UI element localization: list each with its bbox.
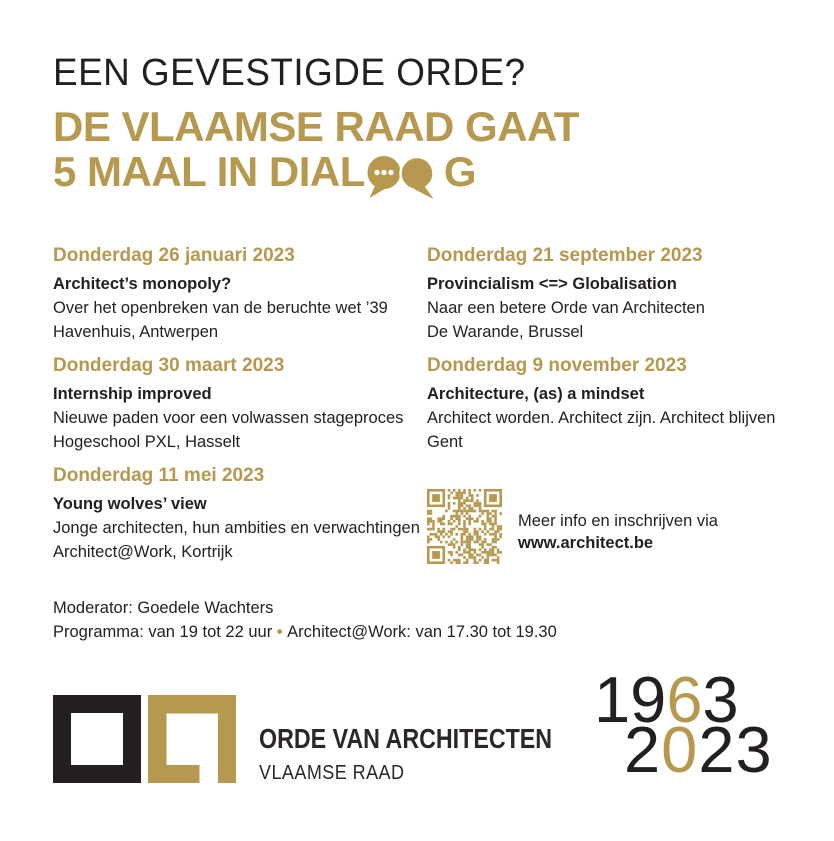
event-date: Donderdag 26 januari 2023 (53, 243, 427, 268)
brand-subtitle: VLAAMSE RAAD (259, 763, 577, 783)
headline: DE VLAAMSE RAAD GAAT 5 MAAL IN DIAL G (53, 104, 579, 202)
programma-line: Programma: van 19 tot 22 uur • Architect… (53, 620, 557, 644)
event-date: Donderdag 21 september 2023 (427, 243, 803, 268)
website-link[interactable]: www.architect.be (518, 532, 718, 554)
footer-notes: Moderator: Goedele Wachters Programma: v… (53, 596, 557, 644)
brand-row: ORDE VAN ARCHITECTEN VLAAMSE RAAD (53, 695, 612, 783)
speech-bubble-icon (400, 157, 433, 190)
programma-part1: Programma: van 19 tot 22 uur (53, 623, 272, 641)
event-title: Architecture, (as) a mindset (427, 382, 803, 406)
qr-code (427, 489, 502, 564)
bullet-separator: • (277, 623, 287, 641)
gold-square-logo-icon (148, 695, 236, 783)
event-location: Hogeschool PXL, Hasselt (53, 430, 427, 454)
event-may: Donderdag 11 mei 2023 Young wolves’ view… (53, 463, 427, 573)
event-date: Donderdag 11 mei 2023 (53, 463, 427, 488)
event-location: De Warande, Brussel (427, 320, 803, 344)
gold-zero: 0 (661, 713, 698, 786)
event-location: Havenhuis, Antwerpen (53, 320, 427, 344)
programma-part2: Architect@Work: van 17.30 tot 19.30 (287, 623, 557, 641)
black-square-logo-icon (53, 695, 141, 783)
qr-info-block: Meer info en inschrijven via www.archite… (427, 463, 803, 573)
event-november: Donderdag 9 november 2023 Architecture, … (427, 353, 803, 463)
event-september: Donderdag 21 september 2023 Provincialis… (427, 243, 803, 353)
qr-caption: Meer info en inschrijven via www.archite… (518, 498, 718, 554)
event-title: Internship improved (53, 382, 427, 406)
event-title: Young wolves’ view (53, 492, 427, 516)
event-march: Donderdag 30 maart 2023 Internship impro… (53, 353, 427, 463)
poster: EEN GEVESTIGDE ORDE? DE VLAAMSE RAAD GAA… (0, 0, 834, 841)
event-description: Naar een betere Orde van Architecten (427, 296, 803, 320)
headline-line1: DE VLAAMSE RAAD GAAT (53, 104, 579, 149)
event-date: Donderdag 30 maart 2023 (53, 353, 427, 378)
headline-line2-text-end: G (444, 149, 476, 194)
event-location: Architect@Work, Kortrijk (53, 540, 427, 564)
events-grid: Donderdag 26 januari 2023 Architect’s mo… (53, 243, 803, 573)
info-text: Meer info en inschrijven via (518, 510, 718, 532)
event-description: Architect worden. Architect zijn. Archit… (427, 406, 803, 430)
headline-line2: 5 MAAL IN DIAL G (53, 149, 579, 202)
event-location: Gent (427, 430, 803, 454)
event-date: Donderdag 9 november 2023 (427, 353, 803, 378)
kicker-title: EEN GEVESTIGDE ORDE? (53, 52, 526, 95)
moderator-line: Moderator: Goedele Wachters (53, 596, 557, 620)
event-title: Architect’s monopoly? (53, 272, 427, 296)
event-title: Provincialism <=> Globalisation (427, 272, 803, 296)
headline-line2-text: 5 MAAL IN DIAL (53, 149, 365, 194)
brand-text: ORDE VAN ARCHITECTEN VLAAMSE RAAD (259, 726, 612, 783)
anniversary-logo: 1963 2023 (594, 668, 773, 782)
event-description: Over het openbreken van de beruchte wet … (53, 296, 427, 320)
event-january: Donderdag 26 januari 2023 Architect’s mo… (53, 243, 427, 353)
event-description: Nieuwe paden voor een volwassen stagepro… (53, 406, 427, 430)
event-description: Jonge architecten, hun ambities en verwa… (53, 516, 427, 540)
speech-bubbles-icon (367, 155, 443, 202)
brand-name: ORDE VAN ARCHITECTEN (259, 726, 552, 752)
